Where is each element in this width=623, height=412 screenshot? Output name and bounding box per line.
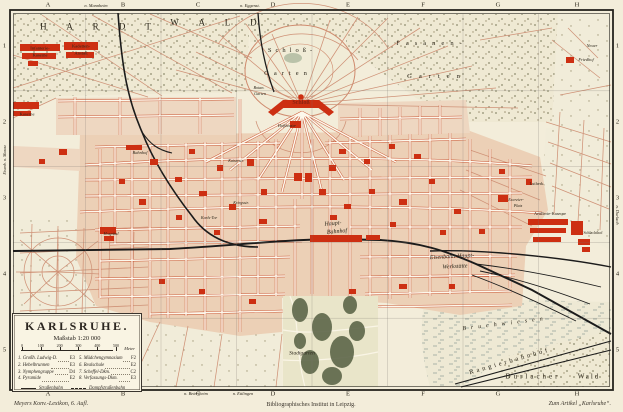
grid-letter: A bbox=[46, 2, 51, 9]
scale-tick-label: 400 bbox=[94, 343, 100, 348]
legend-box: KARLSRUHE. Maßstab 1:20 000 010020030040… bbox=[12, 313, 142, 392]
grid-letter: H bbox=[575, 391, 580, 398]
grid-number: 2 bbox=[3, 119, 6, 126]
legend-item-gridref: F2 bbox=[131, 356, 136, 363]
grid-letter: C bbox=[196, 2, 200, 9]
publisher-caption-center: Bibliographisches Institut in Leipzig. bbox=[266, 402, 355, 408]
grid-number: 1 bbox=[616, 43, 619, 50]
grid-number: 1 bbox=[3, 43, 6, 50]
legend-item: 7. Scheffel-Dkm.C2 bbox=[79, 370, 136, 377]
legend-leader bbox=[123, 361, 130, 362]
legend-line-label: Dampfstraßenbahn bbox=[89, 386, 125, 391]
scale-bar-line bbox=[21, 350, 113, 351]
legend-item: 8. Verfassungs-Dkm.E3 bbox=[79, 376, 136, 383]
legend-item-gridref: E3 bbox=[131, 376, 136, 383]
legend-leader bbox=[105, 368, 130, 369]
legend-item-label: 5. Mädchengymnasium bbox=[79, 356, 122, 363]
legend-item-label: 2. Hebelbrunnen bbox=[18, 363, 50, 370]
scale-tick-label: 100 bbox=[38, 343, 44, 348]
legend-item: 1. Großh. Ludwig-D.E3 bbox=[18, 356, 75, 363]
legend-item-gridref: C2 bbox=[131, 370, 136, 377]
scale-tick-label: 300 bbox=[75, 343, 81, 348]
legend-leader bbox=[55, 374, 69, 375]
article-caption-right: Zum Artikel „Karlsruhe“. bbox=[549, 401, 611, 407]
grid-letter: A bbox=[46, 391, 51, 398]
publisher-caption-left: Meyers Konv.-Lexikon, 6. Aufl. bbox=[14, 401, 88, 407]
legend-leader bbox=[51, 368, 69, 369]
grid-letter: B bbox=[121, 391, 125, 398]
legend-column-2: 5. MädchengymnasiumF26. RealschuleE27. S… bbox=[79, 356, 136, 383]
legend-item-gridref: E3 bbox=[70, 363, 75, 370]
scale-tick-label: 500 bbox=[113, 343, 119, 348]
city-garden bbox=[283, 296, 378, 387]
grid-letter: F bbox=[421, 391, 425, 398]
legend-line-key: Straßenbahn bbox=[21, 386, 63, 391]
grid-letter: E bbox=[346, 2, 350, 9]
grid-number: 5 bbox=[616, 347, 619, 354]
grid-letter: F bbox=[421, 2, 425, 9]
grid-letter: G bbox=[496, 2, 501, 9]
legend-item-label: 3. Nymphengruppe bbox=[18, 370, 54, 377]
legend-items: 1. Großh. Ludwig-D.E32. HebelbrunnenE33.… bbox=[18, 356, 136, 383]
grid-letter: E bbox=[346, 391, 350, 398]
grid-letter: C bbox=[196, 391, 200, 398]
legend-leader bbox=[58, 361, 68, 362]
legend-item-label: 8. Verfassungs-Dkm. bbox=[79, 376, 118, 383]
grid-number: 3 bbox=[616, 195, 619, 202]
grid-letter: B bbox=[121, 2, 125, 9]
legend-item: 4. PyramideE2 bbox=[18, 376, 75, 383]
scale-bar: 0100200300400500Meter bbox=[19, 343, 135, 354]
legend-item-label: 6. Realschule bbox=[79, 363, 104, 370]
legend-item-label: 4. Pyramide bbox=[18, 376, 41, 383]
legend-item-label: 7. Scheffel-Dkm. bbox=[79, 370, 110, 377]
dashed-line-sample bbox=[71, 388, 86, 389]
grid-letter: H bbox=[575, 2, 580, 9]
grid-number: 3 bbox=[3, 195, 6, 202]
legend-item-gridref: D4 bbox=[69, 370, 75, 377]
scale-tick-label: 200 bbox=[57, 343, 63, 348]
legend-line-keys: StraßenbahnDampfstraßenbahn bbox=[21, 386, 133, 391]
grid-letter: G bbox=[496, 391, 501, 398]
map-title: KARLSRUHE. bbox=[13, 319, 141, 334]
legend-item-gridref: E3 bbox=[70, 356, 75, 363]
map-scale-text: Maßstab 1:20 000 bbox=[13, 335, 141, 342]
legend-line-label: Straßenbahn bbox=[39, 386, 63, 391]
legend-leader bbox=[119, 381, 130, 382]
grid-number: 5 bbox=[3, 347, 6, 354]
legend-item-label: 1. Großh. Ludwig-D. bbox=[18, 356, 57, 363]
legend-leader bbox=[111, 374, 129, 375]
map-plate: H A R D TW A L DSchloß-GartenFasanen-Gar… bbox=[0, 0, 623, 412]
scale-tick-label: 0 bbox=[21, 343, 23, 348]
grid-number: 2 bbox=[616, 119, 619, 126]
legend-item: 2. HebelbrunnenE3 bbox=[18, 363, 75, 370]
legend-leader bbox=[42, 381, 69, 382]
legend-item-gridref: E2 bbox=[70, 376, 75, 383]
grid-letter: D bbox=[271, 391, 276, 398]
scale-unit-label: Meter bbox=[124, 346, 135, 351]
grid-letter: D bbox=[271, 2, 276, 9]
legend-item: 6. RealschuleE2 bbox=[79, 363, 136, 370]
legend-column-1: 1. Großh. Ludwig-D.E32. HebelbrunnenE33.… bbox=[18, 356, 75, 383]
grid-number: 4 bbox=[3, 271, 6, 278]
solid-line-sample bbox=[21, 388, 36, 389]
legend-item: 5. MädchengymnasiumF2 bbox=[79, 356, 136, 363]
grid-number: 4 bbox=[616, 271, 619, 278]
legend-item-gridref: E2 bbox=[131, 363, 136, 370]
legend-item: 3. NymphengruppeD4 bbox=[18, 370, 75, 377]
legend-line-key: Dampfstraßenbahn bbox=[71, 386, 125, 391]
